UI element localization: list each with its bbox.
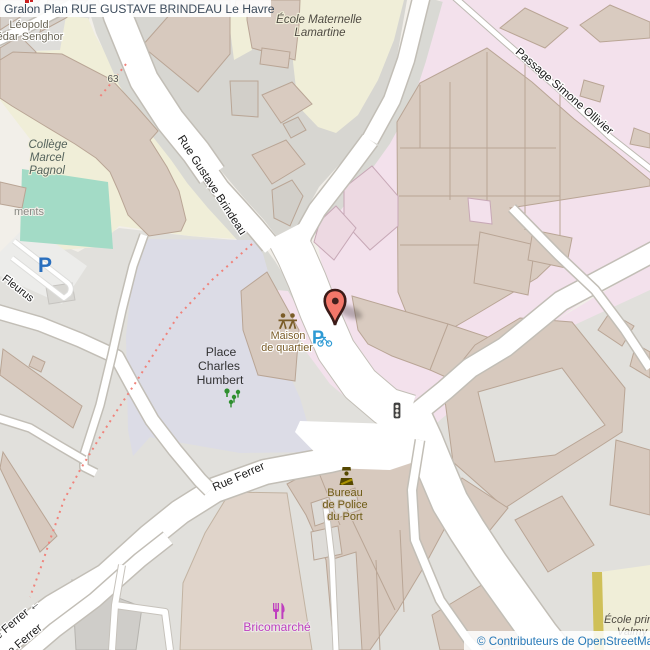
svg-text:Charles: Charles bbox=[198, 359, 240, 373]
svg-text:Lamartine: Lamartine bbox=[294, 27, 345, 39]
svg-text:Bricomarché: Bricomarché bbox=[243, 620, 311, 634]
svg-text:Bureau: Bureau bbox=[327, 487, 362, 499]
svg-text:Pagnol: Pagnol bbox=[29, 165, 65, 177]
svg-text:de Police: de Police bbox=[322, 499, 367, 511]
svg-text:du Port: du Port bbox=[327, 511, 362, 523]
svg-text:édar Senghor: édar Senghor bbox=[0, 31, 64, 43]
svg-text:Collège: Collège bbox=[29, 139, 68, 151]
svg-text:Gralon Plan RUE GUSTAVE BRINDE: Gralon Plan RUE GUSTAVE BRINDEAU Le Havr… bbox=[4, 2, 275, 16]
svg-text:Humbert: Humbert bbox=[197, 373, 244, 387]
svg-text:63: 63 bbox=[107, 74, 119, 85]
svg-text:ments: ments bbox=[14, 206, 44, 218]
svg-text:École prim: École prim bbox=[604, 613, 650, 626]
svg-text:Maison: Maison bbox=[271, 330, 306, 342]
svg-text:de quartier: de quartier bbox=[261, 342, 313, 354]
svg-text:Marcel: Marcel bbox=[30, 152, 65, 164]
svg-text:Léopold: Léopold bbox=[9, 19, 48, 31]
svg-text:École Maternelle: École Maternelle bbox=[276, 13, 362, 26]
svg-text:P: P bbox=[38, 254, 52, 277]
svg-text:© Contributeurs de OpenStreetM: © Contributeurs de OpenStreetMap bbox=[477, 635, 650, 648]
svg-text:Place: Place bbox=[206, 345, 237, 359]
